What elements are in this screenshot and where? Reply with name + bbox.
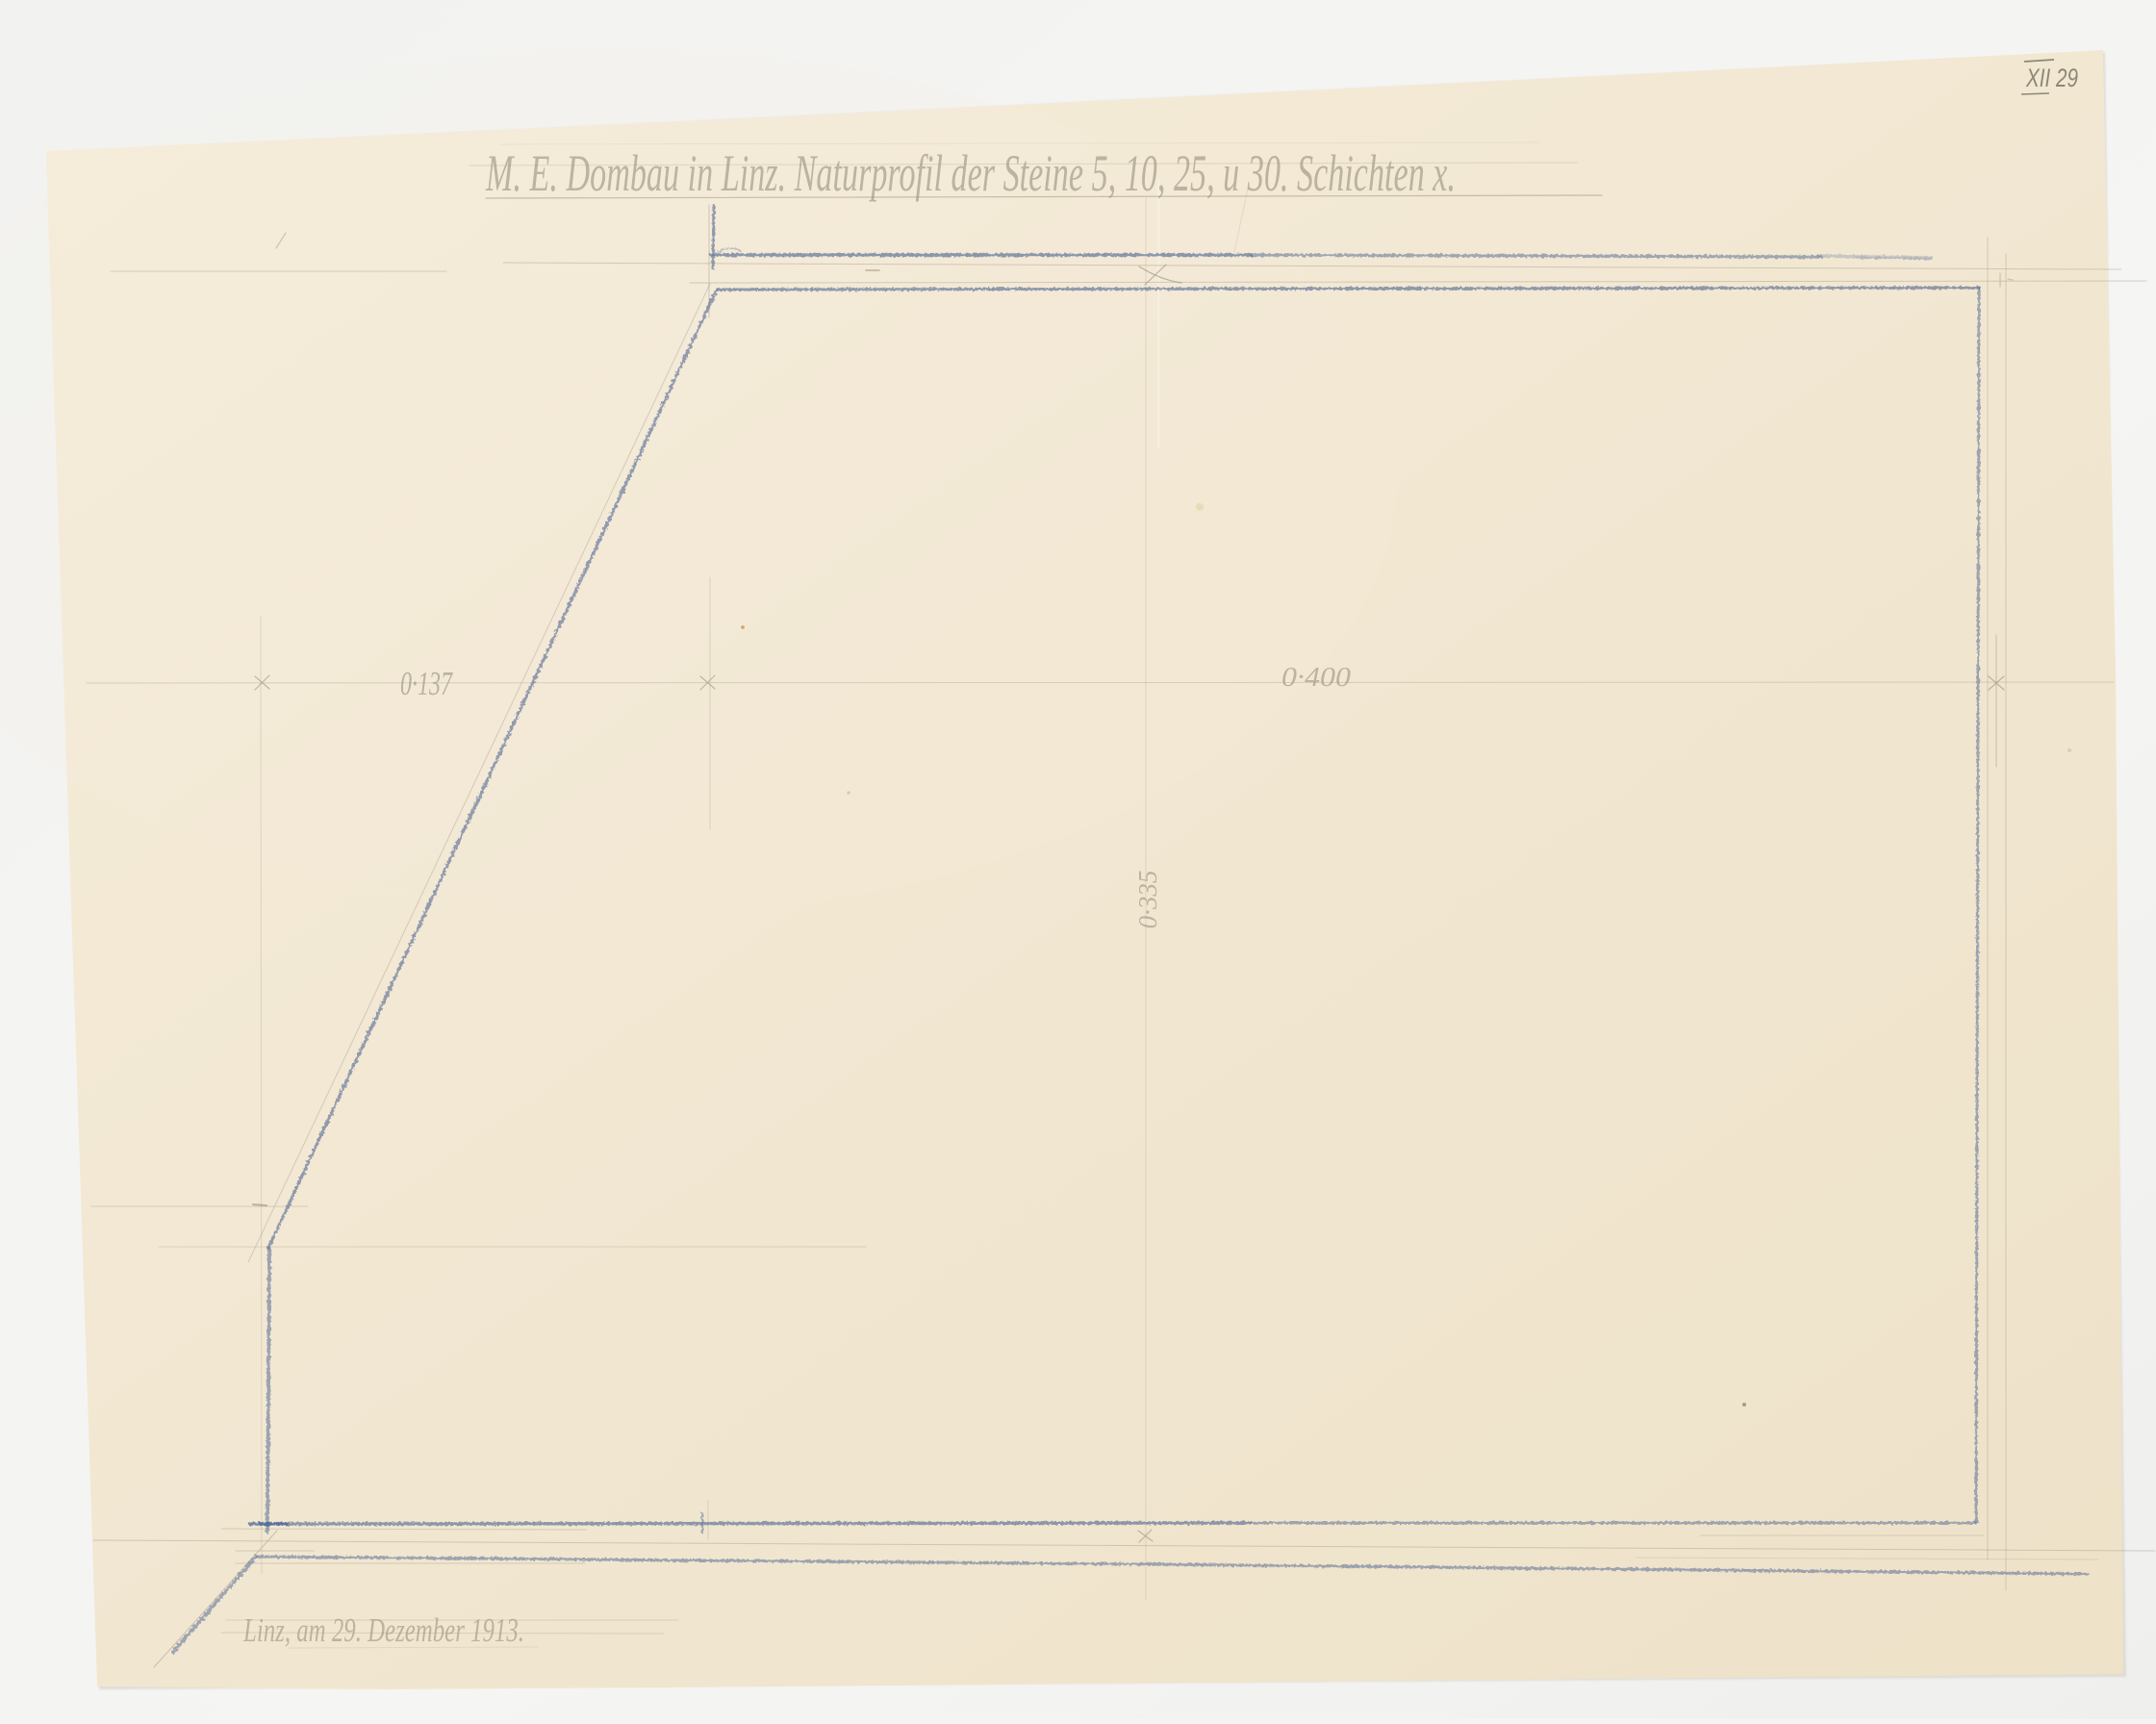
svg-text:0·335: 0·335	[1133, 871, 1162, 929]
svg-text:XII 29: XII 29	[2025, 63, 2078, 92]
svg-text:0·400: 0·400	[1281, 663, 1351, 693]
svg-text:M. E. Dombau in Linz. Naturpro: M. E. Dombau in Linz. Naturprofil der St…	[485, 144, 1456, 202]
svg-text:Linz, am 29. Dezember 1913.: Linz, am 29. Dezember 1913.	[242, 1611, 524, 1649]
svg-text:0·137: 0·137	[400, 665, 453, 702]
